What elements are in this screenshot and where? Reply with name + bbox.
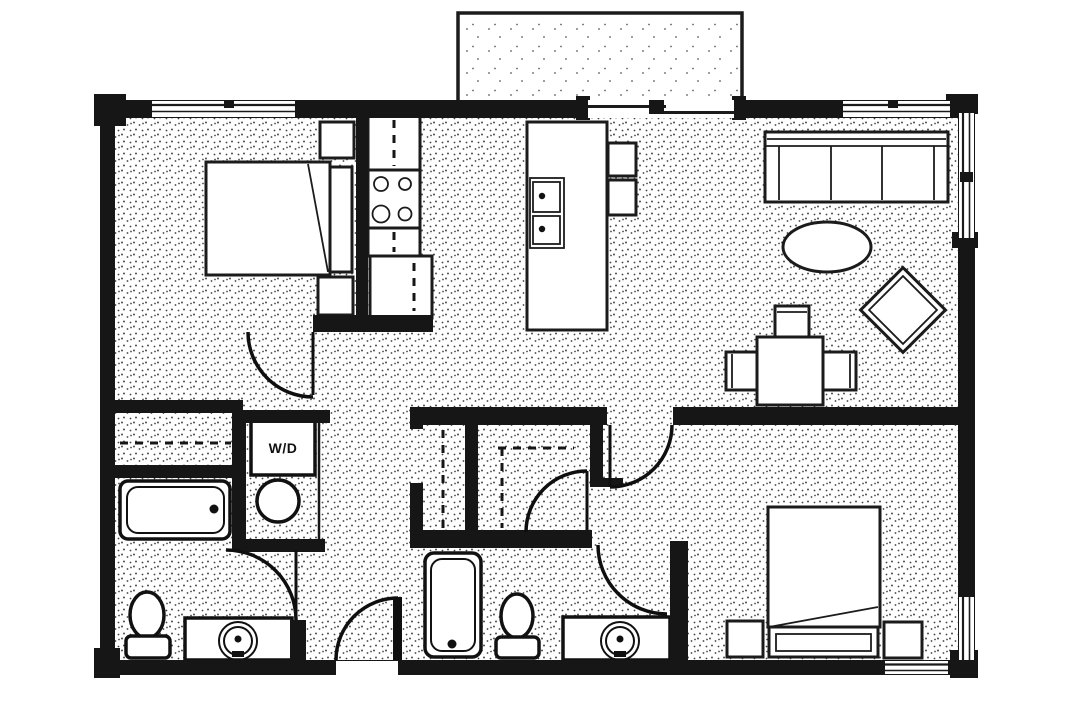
washer-dryer-label: W/D [269, 440, 298, 456]
sink-2-fitting [614, 651, 626, 657]
wall-closet1-south [113, 465, 233, 478]
outer-wall-bottom [100, 660, 975, 675]
window-living-top-mullion [888, 100, 898, 108]
corner-post-tr [946, 94, 978, 114]
dining-chair-left [726, 352, 757, 390]
sliding-door-latch-block [649, 100, 664, 114]
island-counter [527, 122, 607, 330]
balcony [458, 13, 742, 110]
wall-closet-west-upper [410, 407, 423, 429]
sink-drain-2 [539, 226, 545, 232]
window-bedroom1-mullion [224, 100, 234, 108]
slider-jamb-left [576, 96, 590, 120]
entry-opening [336, 661, 398, 675]
wall-wd-south [232, 539, 325, 552]
nightstand-2b [884, 622, 922, 658]
wall-corridor-south-left [410, 407, 607, 425]
wall-bedroom1-south [313, 315, 433, 332]
wall-closet1-north [113, 400, 243, 413]
floor-plan-svg: W/D [0, 0, 1080, 720]
window-bedroom2-right-band [959, 597, 974, 660]
refrigerator [370, 256, 432, 318]
dryer-drum-circle [257, 480, 299, 522]
dining-chair-right [823, 352, 856, 390]
toilet-1-bowl [130, 592, 164, 638]
floor-plan-page: W/D [0, 0, 1080, 720]
coffee-table [783, 222, 871, 272]
dining-chair-top [775, 306, 809, 337]
wall-bedroom1-kitchen [356, 113, 368, 315]
window-living-right-mullion [960, 172, 973, 182]
wall-bathroom2-north [410, 530, 592, 548]
toilet-2-bowl [501, 594, 533, 638]
slider-jamb-right [732, 96, 746, 120]
nightstand-1b [318, 277, 353, 315]
bed-1-headboard [330, 167, 352, 272]
wall-corridor-south-right [673, 407, 958, 425]
bathtub-2-drain [448, 640, 457, 649]
door-leaf-entry [393, 597, 402, 660]
bar-stool-2 [608, 180, 636, 215]
window-bedroom1-band [152, 101, 295, 117]
corner-post-bl [94, 648, 120, 678]
toilet-1-tank [126, 636, 170, 658]
sink-drain-1 [539, 193, 545, 199]
bathtub-1-drain [210, 505, 219, 514]
sink-1-faucet [235, 636, 242, 643]
toilet-2-tank [496, 637, 539, 658]
wall-bathroom2-east [670, 541, 688, 660]
wall-closet-b-east [590, 425, 603, 485]
sink-1-fitting [232, 651, 244, 657]
dining-table [757, 337, 823, 405]
nightstand-2a [727, 621, 763, 657]
sink-2-faucet [617, 636, 624, 643]
wall-wd-north [232, 410, 330, 423]
bed-2-headboard [769, 627, 878, 657]
wall-closet-divider [465, 425, 478, 533]
sofa [765, 132, 948, 202]
nightstand-1a [320, 122, 354, 158]
outer-wall-left [100, 100, 115, 675]
wall-wd-west [232, 410, 246, 552]
window-bedroom2-bottom-band [885, 661, 948, 674]
balcony-floor-texture [461, 16, 739, 107]
bar-stool-1 [608, 143, 636, 176]
wall-bathroom1-east-stub [290, 620, 306, 660]
corner-post-tl [94, 94, 126, 126]
